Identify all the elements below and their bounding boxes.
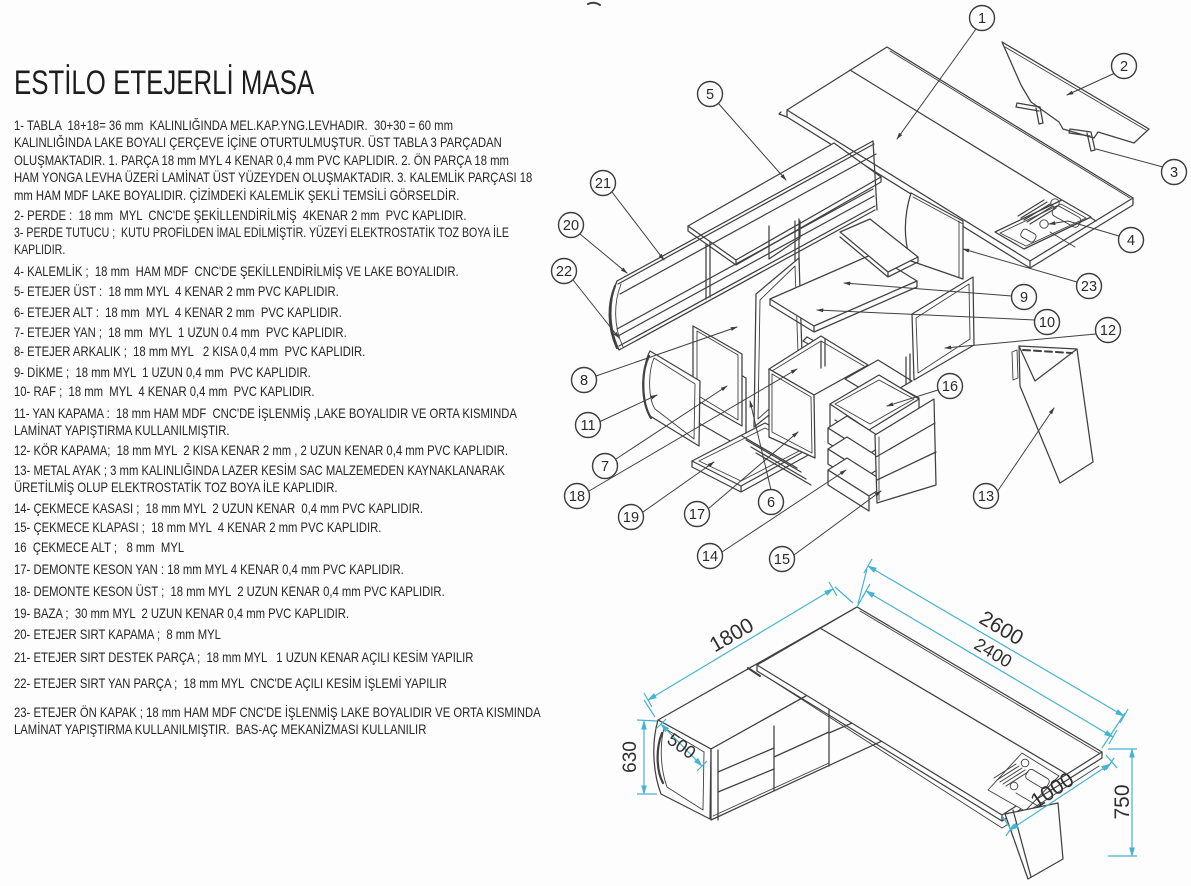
svg-text:9: 9 <box>1020 290 1028 306</box>
svg-text:630: 630 <box>620 741 641 773</box>
svg-text:3: 3 <box>1170 165 1178 181</box>
svg-text:20: 20 <box>563 218 579 234</box>
svg-text:14: 14 <box>702 549 718 565</box>
svg-text:18: 18 <box>569 489 585 505</box>
svg-text:15: 15 <box>774 552 790 568</box>
svg-text:19: 19 <box>623 510 639 526</box>
svg-text:1800: 1800 <box>706 614 758 657</box>
svg-text:22: 22 <box>556 264 572 280</box>
svg-text:1: 1 <box>978 11 986 27</box>
svg-text:10: 10 <box>1039 315 1055 331</box>
svg-text:750: 750 <box>1111 784 1134 819</box>
svg-text:4: 4 <box>1127 233 1135 249</box>
svg-text:12: 12 <box>1100 323 1116 339</box>
svg-text:5: 5 <box>706 87 714 103</box>
svg-text:2: 2 <box>1120 59 1128 75</box>
svg-text:8: 8 <box>580 373 588 389</box>
svg-text:21: 21 <box>595 176 611 192</box>
svg-text:23: 23 <box>1081 279 1097 295</box>
svg-text:7: 7 <box>601 459 609 475</box>
svg-text:16: 16 <box>942 379 958 395</box>
svg-text:11: 11 <box>580 418 595 434</box>
svg-text:6: 6 <box>767 495 775 511</box>
svg-text:17: 17 <box>689 507 705 523</box>
svg-text:13: 13 <box>978 489 994 505</box>
